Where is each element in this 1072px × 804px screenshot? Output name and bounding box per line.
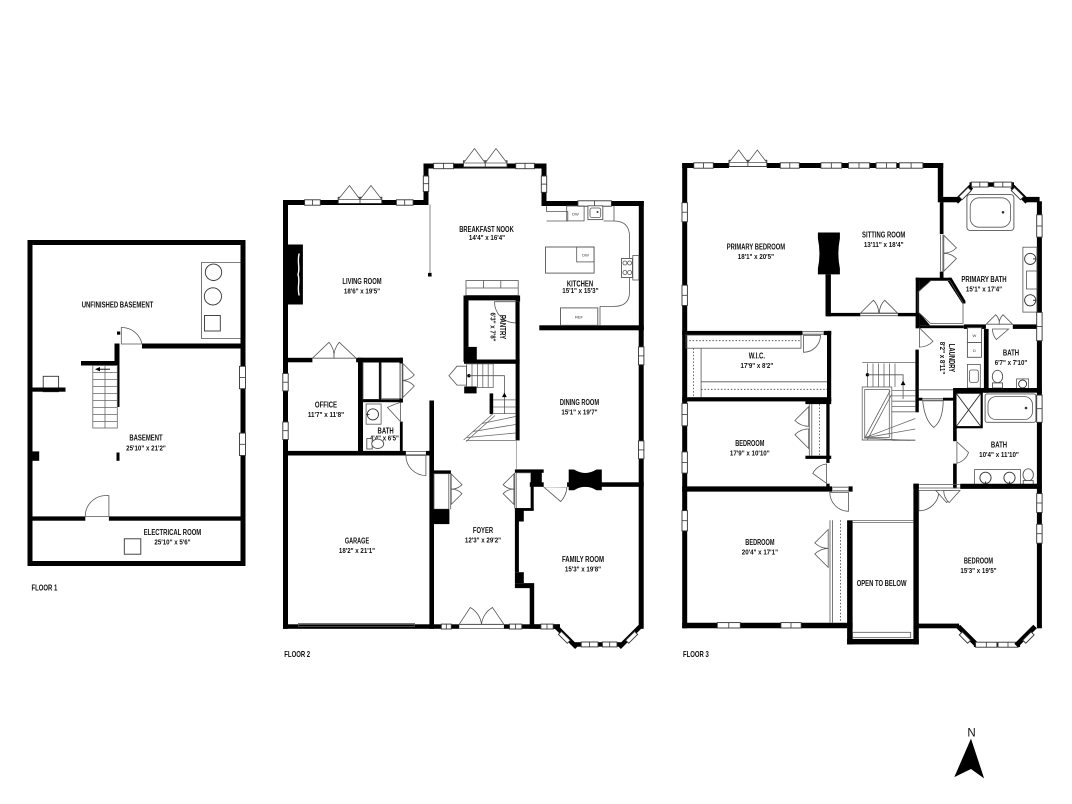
svg-text:BATH: BATH <box>991 441 1007 450</box>
svg-text:LAUNDRY: LAUNDRY <box>947 344 956 373</box>
svg-text:13'11" x 18'4": 13'11" x 18'4" <box>864 240 904 249</box>
svg-text:FLOOR 2: FLOOR 2 <box>284 650 310 659</box>
svg-text:20'4" x 17'1": 20'4" x 17'1" <box>742 548 779 557</box>
svg-text:LIVING ROOM: LIVING ROOM <box>342 277 381 286</box>
svg-text:W: W <box>973 333 977 338</box>
svg-text:14'4" x 16'4": 14'4" x 16'4" <box>469 233 506 242</box>
svg-text:15'3" x 19'8": 15'3" x 19'8" <box>565 565 602 574</box>
svg-text:FLOOR 3: FLOOR 3 <box>683 650 709 659</box>
svg-text:6'3" x 7'8": 6'3" x 7'8" <box>489 312 498 341</box>
svg-text:10'4" x 11'10": 10'4" x 11'10" <box>979 450 1019 459</box>
svg-text:12'3" x 29'2": 12'3" x 29'2" <box>465 536 502 545</box>
svg-text:FAMILY ROOM: FAMILY ROOM <box>562 555 604 564</box>
svg-text:8'2" x 8'11": 8'2" x 8'11" <box>938 342 947 375</box>
svg-text:15'3" x 19'5": 15'3" x 19'5" <box>960 566 997 575</box>
svg-text:15'1" x 15'3": 15'1" x 15'3" <box>562 286 599 295</box>
svg-text:BASEMENT: BASEMENT <box>129 434 162 443</box>
svg-text:18'2" x 21'1": 18'2" x 21'1" <box>339 546 376 555</box>
svg-text:PRIMARY BATH: PRIMARY BATH <box>961 275 1007 284</box>
svg-text:25'10" x 5'6": 25'10" x 5'6" <box>154 538 191 547</box>
svg-text:6'7" x 7'10": 6'7" x 7'10" <box>995 358 1028 367</box>
svg-text:11'7" x 11'8": 11'7" x 11'8" <box>308 410 345 419</box>
svg-text:BEDROOM: BEDROOM <box>964 557 993 566</box>
svg-text:17'9" x 8'2": 17'9" x 8'2" <box>741 361 774 370</box>
svg-text:OPEN TO BELOW: OPEN TO BELOW <box>857 579 907 588</box>
svg-text:BATH: BATH <box>1003 349 1019 358</box>
svg-text:N: N <box>967 728 975 740</box>
svg-text:18'1" x 20'5": 18'1" x 20'5" <box>738 252 775 261</box>
svg-text:PRIMARY BEDROOM: PRIMARY BEDROOM <box>727 243 785 252</box>
svg-text:FOYER: FOYER <box>473 526 493 535</box>
svg-text:FLOOR 1: FLOOR 1 <box>32 584 58 593</box>
svg-text:SITTING ROOM: SITTING ROOM <box>862 231 905 240</box>
svg-text:15'1" x 19'7": 15'1" x 19'7" <box>561 408 598 417</box>
svg-text:15'1" x 17'4": 15'1" x 17'4" <box>966 285 1003 294</box>
svg-text:DW: DW <box>572 212 579 217</box>
svg-text:D: D <box>973 348 976 353</box>
svg-text:18'6" x 19'5": 18'6" x 19'5" <box>344 287 381 296</box>
svg-text:UNFINISHED BASEMENT: UNFINISHED BASEMENT <box>82 301 154 310</box>
svg-text:BEDROOM: BEDROOM <box>735 439 764 448</box>
svg-text:25'10" x 21'2": 25'10" x 21'2" <box>126 443 166 452</box>
svg-text:ELECTRICAL ROOM: ELECTRICAL ROOM <box>144 528 202 537</box>
svg-text:W.I.C.: W.I.C. <box>749 351 765 360</box>
svg-text:DW: DW <box>582 253 589 258</box>
svg-text:GARAGE: GARAGE <box>345 537 369 546</box>
svg-text:OFFICE: OFFICE <box>315 401 337 410</box>
svg-text:DINING ROOM: DINING ROOM <box>560 398 599 407</box>
svg-text:17'9" x 10'10": 17'9" x 10'10" <box>730 449 770 458</box>
svg-text:PANTRY: PANTRY <box>498 315 507 340</box>
svg-text:BEDROOM: BEDROOM <box>745 538 774 547</box>
svg-text:REF: REF <box>575 315 584 320</box>
